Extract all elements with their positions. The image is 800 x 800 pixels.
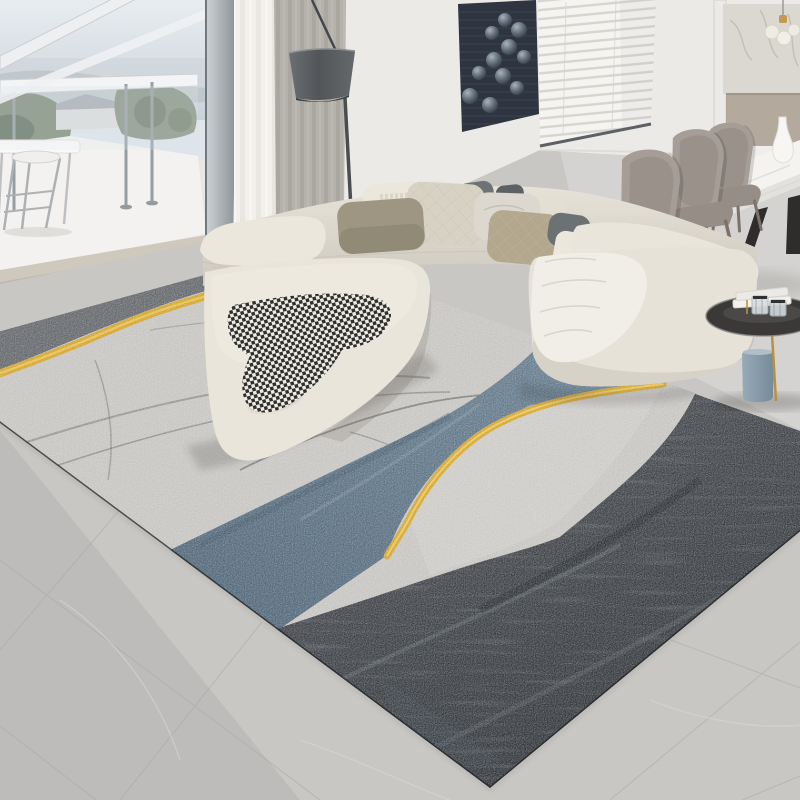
wall-art [456,0,540,132]
floor-vase-shading [742,350,774,402]
floor-vase-mouth [743,349,773,355]
blinds-window [538,0,656,146]
window-mullion [206,0,238,246]
sheer-curtain-folds [234,0,280,252]
blinds-shade [620,0,656,130]
lamp-shade-shading [289,49,355,100]
glass-dark-accent-2 [771,300,785,303]
pendant-fitting [779,15,787,23]
living-room-photo [0,0,800,800]
glass-dark-accent-1 [753,296,767,299]
pendant-globe-3 [788,24,800,36]
gray-curtain-folds [274,0,346,222]
scene-canvas [0,0,800,800]
